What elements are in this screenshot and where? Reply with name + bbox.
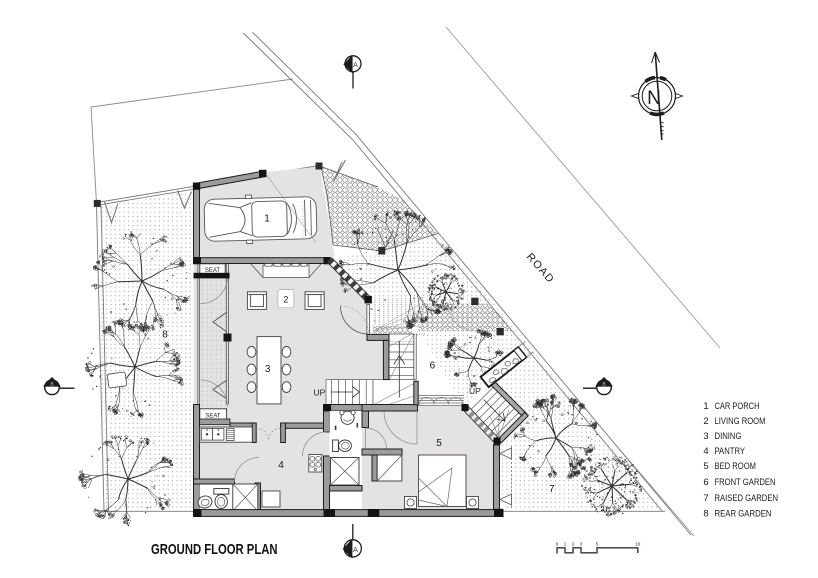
svg-text:REAR GARDEN: REAR GARDEN [715,508,772,519]
svg-text:10: 10 [635,542,641,547]
svg-text:7: 7 [703,493,708,504]
svg-text:RAISED GARDEN: RAISED GARDEN [715,493,779,504]
svg-text:1: 1 [703,401,708,412]
svg-text:PANTRY: PANTRY [715,446,746,457]
svg-text:3: 3 [580,542,583,547]
svg-text:2: 2 [572,542,575,547]
svg-text:CAR PORCH: CAR PORCH [715,401,760,412]
svg-text:3: 3 [265,364,271,375]
svg-text:8: 8 [703,508,708,519]
svg-text:3: 3 [703,431,708,442]
svg-text:1: 1 [264,214,270,225]
svg-text:UP: UP [314,388,326,398]
svg-text:A: A [353,545,358,554]
svg-text:4: 4 [703,446,708,457]
svg-text:6: 6 [430,361,436,372]
svg-text:BED ROOM: BED ROOM [715,461,757,472]
svg-text:LIVING ROOM: LIVING ROOM [715,416,766,427]
svg-text:2: 2 [283,295,288,305]
svg-text:5: 5 [436,438,442,449]
svg-text:GROUND FLOOR PLAN: GROUND FLOOR PLAN [151,542,278,558]
svg-text:6: 6 [703,477,708,488]
svg-text:FRONT GARDEN: FRONT GARDEN [715,477,776,488]
svg-text:UP: UP [469,386,481,396]
svg-text:A: A [353,62,358,69]
svg-text:4: 4 [278,460,284,471]
svg-text:2: 2 [703,416,708,427]
svg-text:N: N [647,88,661,109]
svg-text:SEAT: SEAT [205,413,221,419]
svg-text:5: 5 [596,542,599,547]
svg-text:1: 1 [564,542,567,547]
svg-text:7: 7 [549,484,555,495]
svg-text:5: 5 [703,461,708,472]
svg-text:8: 8 [162,330,168,341]
svg-text:ROAD: ROAD [524,251,557,286]
svg-text:DINING: DINING [715,431,742,442]
svg-text:0: 0 [556,542,559,547]
